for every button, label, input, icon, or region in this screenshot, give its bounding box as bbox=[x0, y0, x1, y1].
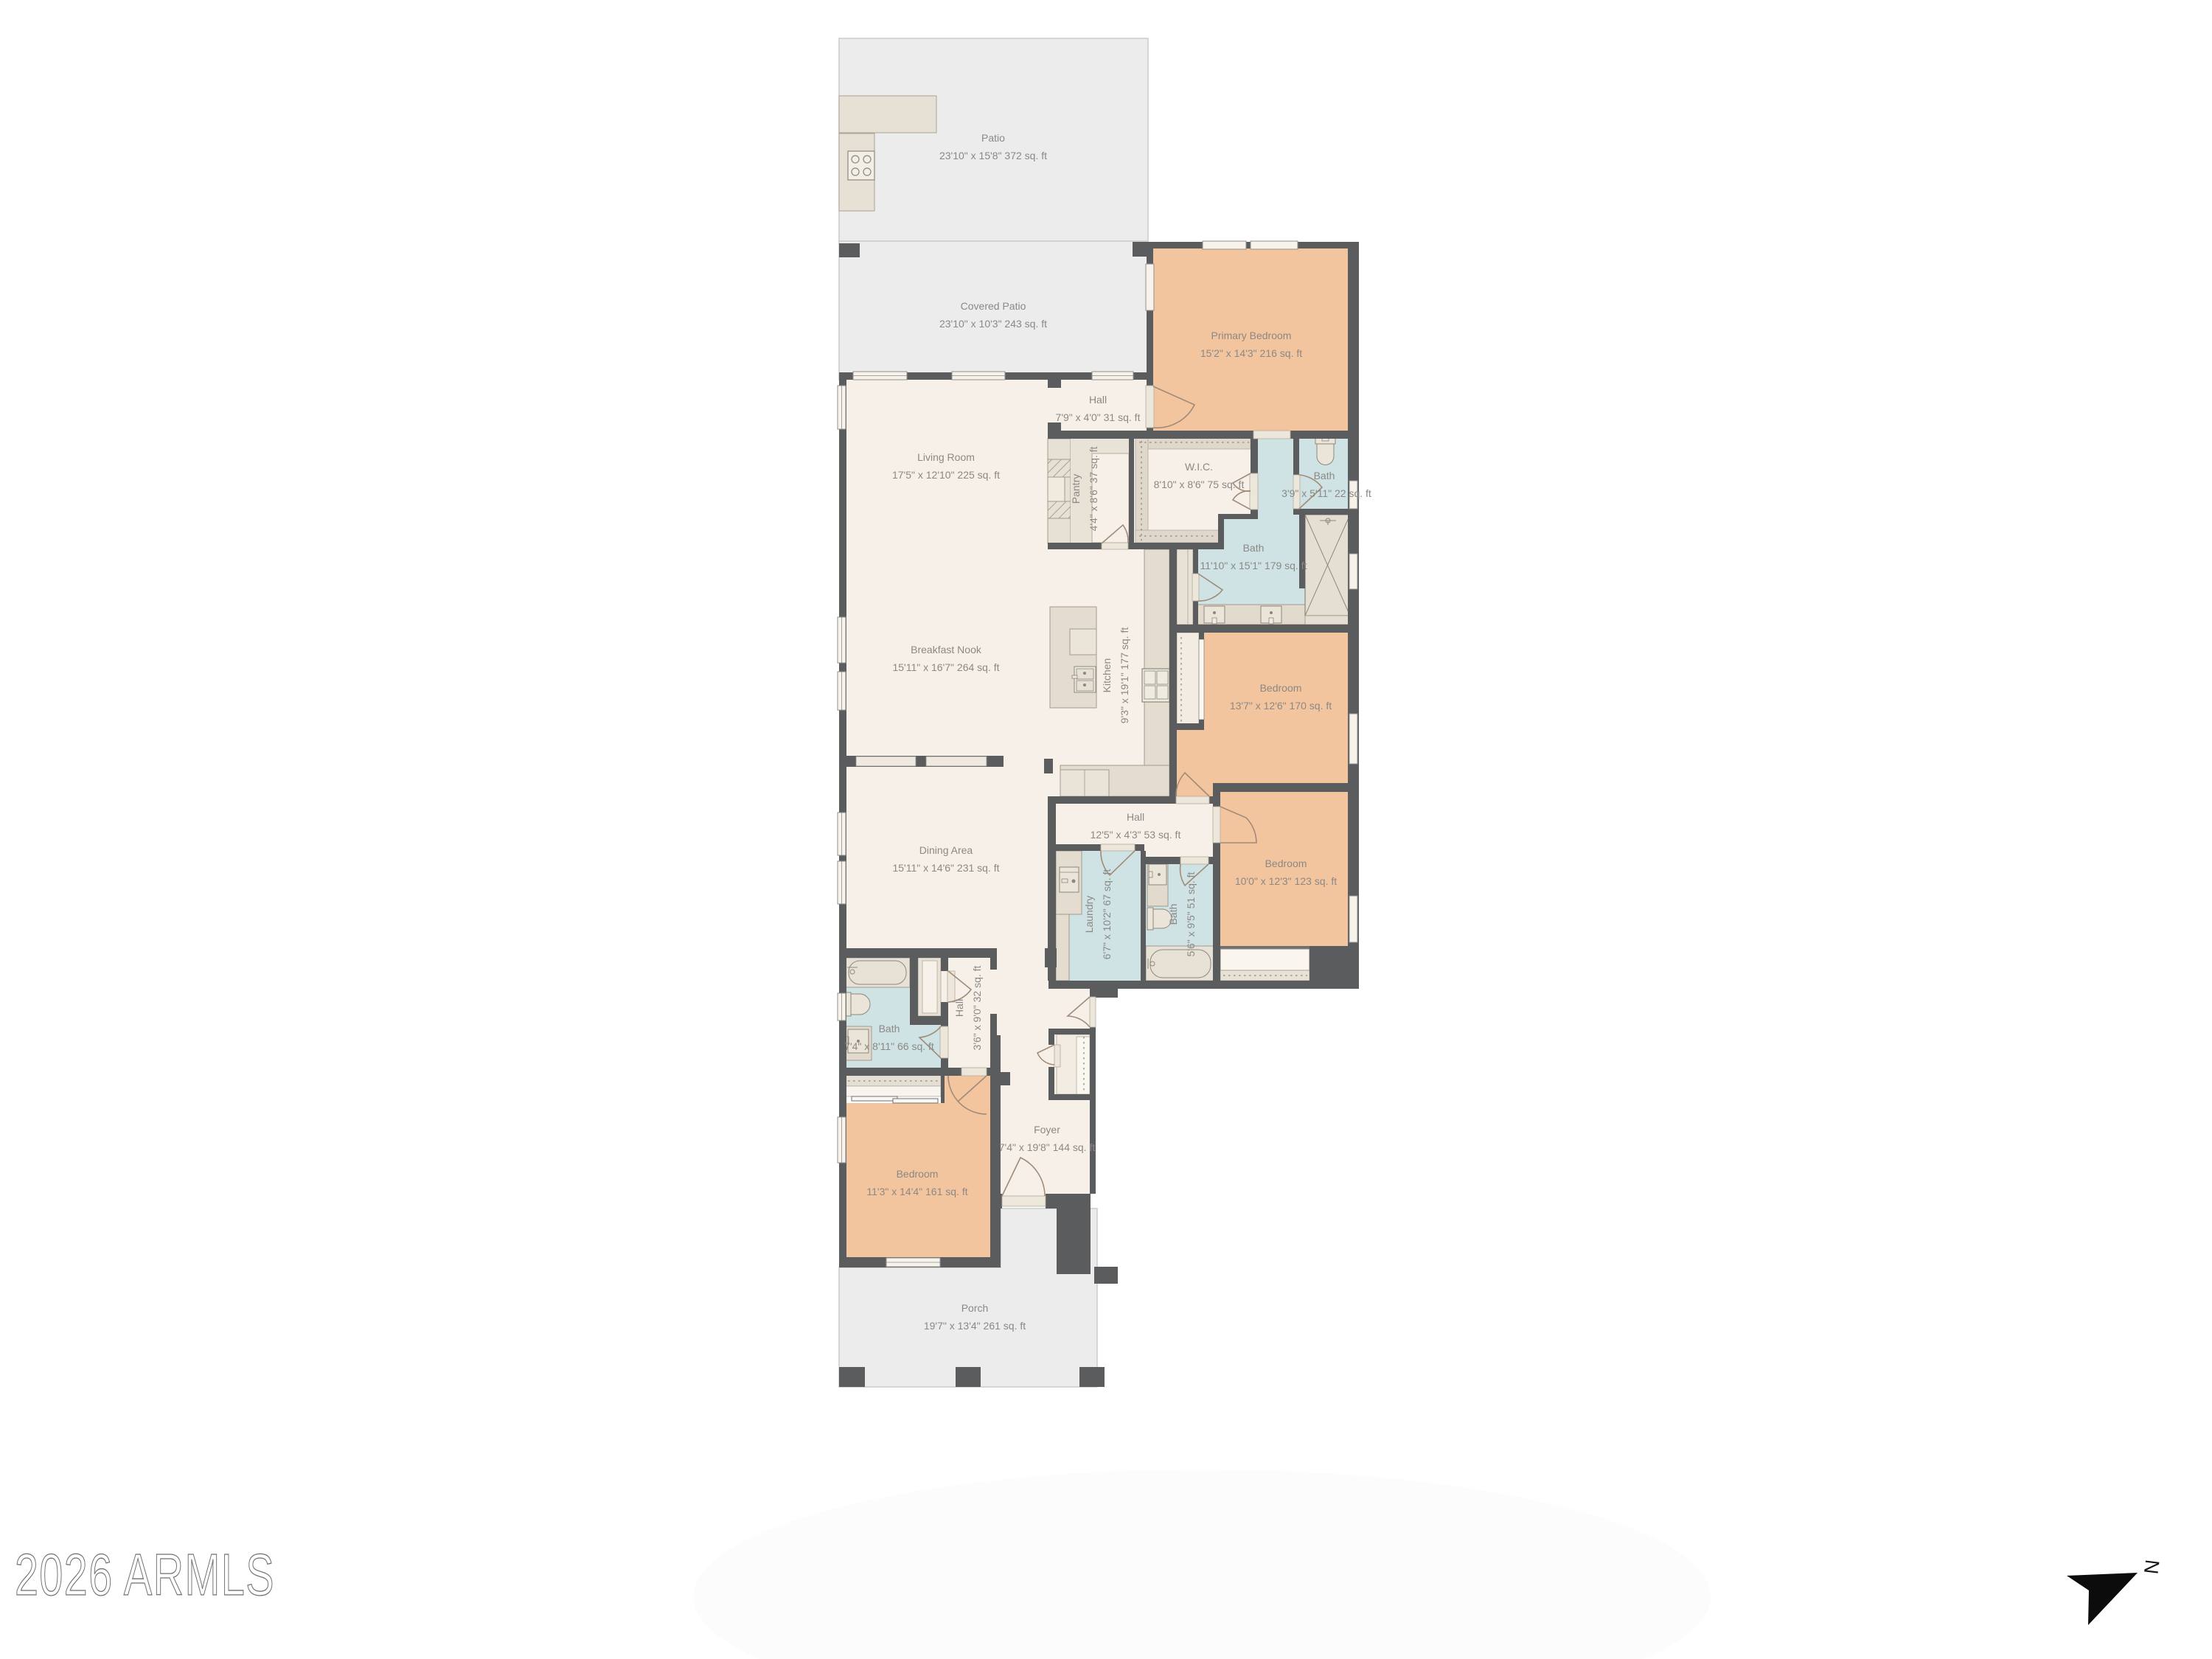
svg-text:12'5" x 4'3" 53 sq. ft: 12'5" x 4'3" 53 sq. ft bbox=[1091, 829, 1181, 841]
svg-text:9'3" x 19'1" 177 sq. ft: 9'3" x 19'1" 177 sq. ft bbox=[1119, 627, 1130, 724]
svg-text:4'4" x 8'6" 37 sq. ft: 4'4" x 8'6" 37 sq. ft bbox=[1088, 446, 1099, 531]
svg-text:Laundry: Laundry bbox=[1083, 896, 1095, 933]
svg-text:7'4" x 8'11" 66 sq. ft: 7'4" x 8'11" 66 sq. ft bbox=[844, 1040, 934, 1052]
svg-text:17'5" x 12'10" 225 sq. ft: 17'5" x 12'10" 225 sq. ft bbox=[892, 469, 1000, 481]
svg-text:13'7" x 12'6" 170 sq. ft: 13'7" x 12'6" 170 sq. ft bbox=[1230, 700, 1332, 712]
svg-text:15'11" x 14'6" 231 sq. ft: 15'11" x 14'6" 231 sq. ft bbox=[892, 862, 999, 874]
svg-text:15'2" x 14'3" 216 sq. ft: 15'2" x 14'3" 216 sq. ft bbox=[1200, 347, 1302, 359]
svg-text:7'9" x 4'0" 31 sq. ft: 7'9" x 4'0" 31 sq. ft bbox=[1056, 411, 1141, 423]
svg-text:23'10" x 15'8" 372 sq. ft: 23'10" x 15'8" 372 sq. ft bbox=[939, 150, 1047, 161]
svg-text:Bath: Bath bbox=[879, 1023, 900, 1034]
svg-text:Kitchen: Kitchen bbox=[1101, 658, 1113, 693]
svg-text:3'6" x 9'0" 32 sq. ft: 3'6" x 9'0" 32 sq. ft bbox=[971, 965, 983, 1050]
svg-text:Breakfast Nook: Breakfast Nook bbox=[911, 644, 982, 655]
svg-text:Foyer: Foyer bbox=[1034, 1124, 1060, 1135]
svg-text:10'0" x 12'3" 123 sq. ft: 10'0" x 12'3" 123 sq. ft bbox=[1235, 875, 1337, 887]
svg-text:11'3" x 14'4" 161 sq. ft: 11'3" x 14'4" 161 sq. ft bbox=[866, 1186, 967, 1197]
svg-text:Bedroom: Bedroom bbox=[1260, 682, 1302, 694]
svg-text:Covered Patio: Covered Patio bbox=[961, 300, 1026, 312]
svg-text:N: N bbox=[2140, 1558, 2163, 1575]
svg-text:Patio: Patio bbox=[981, 132, 1005, 144]
svg-text:Primary Bedroom: Primary Bedroom bbox=[1211, 330, 1292, 341]
svg-text:7'4" x 19'8" 144 sq. ft: 7'4" x 19'8" 144 sq. ft bbox=[999, 1141, 1096, 1153]
svg-text:2026 ARMLS: 2026 ARMLS bbox=[15, 1542, 275, 1607]
svg-text:Living Room: Living Room bbox=[917, 451, 975, 463]
svg-text:11'10" x 15'1" 179 sq. ft: 11'10" x 15'1" 179 sq. ft bbox=[1200, 560, 1307, 571]
svg-text:23'10" x 10'3" 243 sq. ft: 23'10" x 10'3" 243 sq. ft bbox=[939, 318, 1047, 330]
svg-text:3'9" x 5'11" 22 sq. ft: 3'9" x 5'11" 22 sq. ft bbox=[1281, 487, 1371, 499]
svg-text:Bedroom: Bedroom bbox=[897, 1168, 939, 1180]
svg-text:6'7" x 10'2" 67 sq. ft: 6'7" x 10'2" 67 sq. ft bbox=[1101, 869, 1113, 960]
svg-text:8'10" x 8'6" 75 sq. ft: 8'10" x 8'6" 75 sq. ft bbox=[1154, 479, 1245, 490]
svg-text:Dining Area: Dining Area bbox=[919, 844, 973, 856]
svg-text:Bath: Bath bbox=[1243, 542, 1265, 554]
svg-text:Bath: Bath bbox=[1314, 470, 1335, 481]
svg-text:Bath: Bath bbox=[1167, 904, 1179, 925]
svg-text:15'11" x 16'7" 264 sq. ft: 15'11" x 16'7" 264 sq. ft bbox=[892, 661, 999, 673]
svg-text:W.I.C.: W.I.C. bbox=[1185, 461, 1213, 473]
svg-text:Pantry: Pantry bbox=[1070, 474, 1082, 504]
svg-text:Hall: Hall bbox=[1089, 394, 1107, 406]
svg-text:Hall: Hall bbox=[1127, 811, 1144, 823]
svg-text:Bedroom: Bedroom bbox=[1265, 858, 1307, 869]
svg-text:Hall: Hall bbox=[953, 999, 965, 1017]
svg-text:5'6" x 9'5" 51 sq. ft: 5'6" x 9'5" 51 sq. ft bbox=[1185, 872, 1197, 956]
svg-text:19'7" x 13'4" 261 sq. ft: 19'7" x 13'4" 261 sq. ft bbox=[924, 1320, 1026, 1332]
svg-text:Porch: Porch bbox=[961, 1302, 989, 1314]
